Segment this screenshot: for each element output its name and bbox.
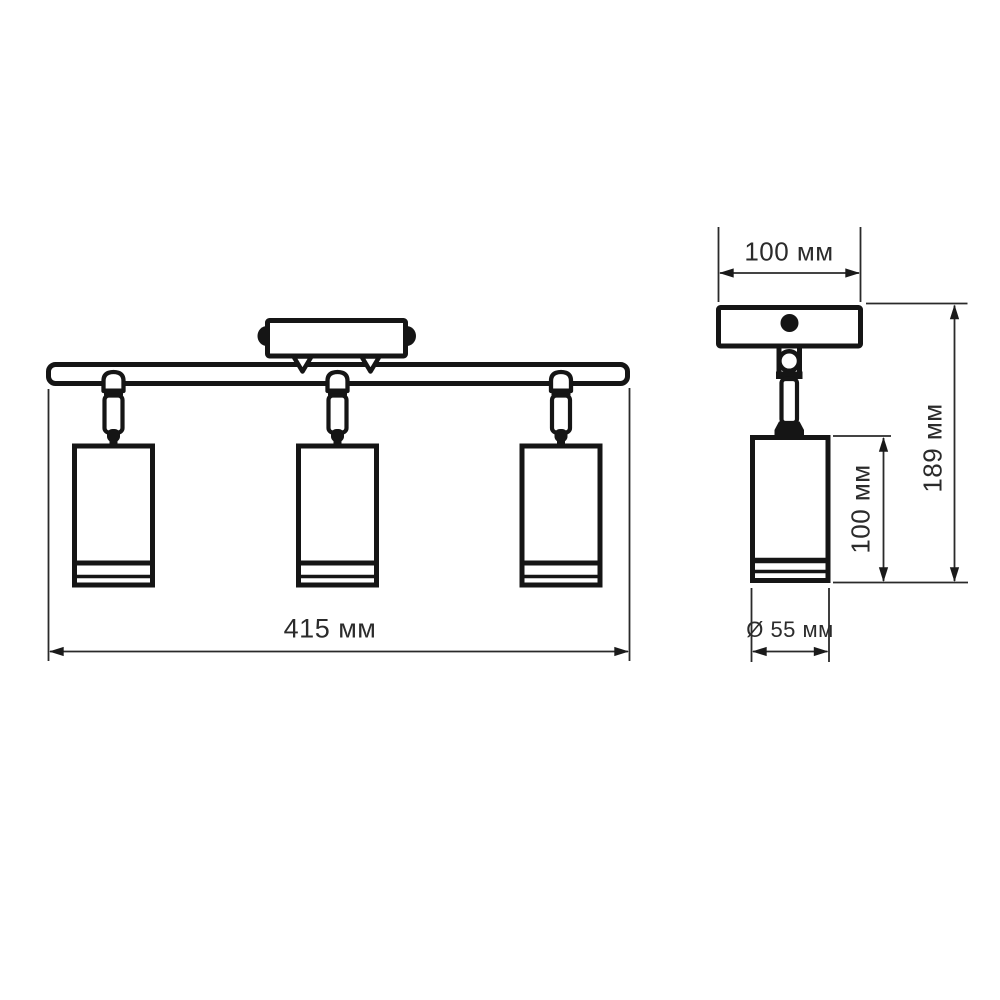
swivel-cone [104, 372, 124, 391]
swivel-ball [779, 351, 799, 371]
swivel-stem [105, 396, 123, 433]
swivel-cone [551, 372, 571, 391]
body-diameter-label: Ø 55 мм [746, 617, 834, 643]
spot-assembly-right [522, 372, 600, 585]
spot-assembly-left [75, 372, 153, 585]
overall-width-label: 415 мм [284, 614, 377, 645]
canopy-width-label: 100 мм [744, 237, 833, 268]
canopy-plate [268, 321, 406, 357]
swivel-stem [782, 379, 798, 423]
page-canvas: 415 мм 100 мм 189 мм 100 мм Ø 55 мм [0, 0, 1000, 1000]
swivel-stem [552, 396, 570, 433]
front-view [49, 321, 630, 662]
swivel-cone [328, 372, 348, 391]
body-height-label: 100 мм [846, 464, 877, 553]
spot-assembly-middle [299, 372, 377, 585]
swivel-stem [329, 396, 347, 433]
screw-dot [781, 314, 799, 332]
stem-connector [775, 422, 805, 437]
overall-height-label: 189 мм [918, 403, 949, 492]
